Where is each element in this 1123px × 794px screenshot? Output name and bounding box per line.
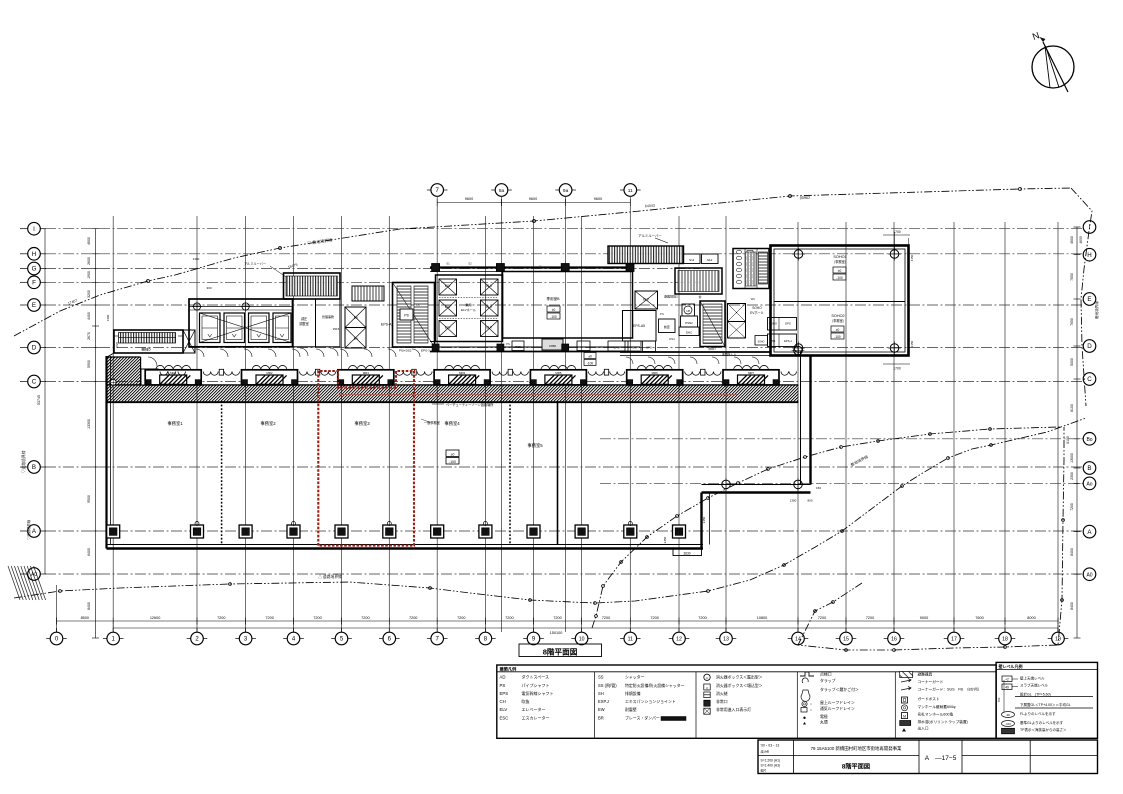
svg-text:出入口: 出入口 [918,726,929,731]
svg-text:I: I [33,226,35,233]
svg-text:EVホール: EVホール [750,310,765,315]
svg-text:MR7: MR7 [748,371,754,375]
svg-text:49: 49 [1005,686,1009,690]
svg-text:4600: 4600 [1070,236,1074,244]
svg-text:2600: 2600 [87,257,91,265]
svg-text:13: 13 [723,637,729,643]
svg-text:Ao: Ao [1086,482,1092,488]
svg-text:PS: PS [404,314,409,318]
svg-text:EPS: EPS [785,322,791,326]
svg-text:Bo: Bo [1086,437,1092,443]
svg-text:事務室5: 事務室5 [527,442,543,449]
svg-text:5900: 5900 [87,360,91,368]
svg-text:前室: 前室 [664,324,670,329]
svg-text:-100: -100 [834,335,841,339]
svg-text:アルミルーバー: アルミルーバー [244,261,266,266]
svg-text:D: D [32,345,37,352]
svg-text:PSI+DS2: PSI+DS2 [399,349,412,353]
svg-text:150100: 150100 [550,631,563,635]
svg-text:B: B [32,464,36,471]
svg-text:ELVホール: ELVホール [461,307,476,312]
svg-text:DHC: DHC [686,331,692,335]
svg-text:EV: EV [354,337,359,341]
svg-text:S12: S12 [707,258,713,262]
svg-text:壁レベル凡例: 壁レベル凡例 [998,663,1023,669]
svg-text:EPS: EPS [614,346,620,350]
svg-text:7650: 7650 [1070,318,1074,326]
svg-text:EPS-3: EPS-3 [421,349,430,353]
svg-text:減圧: 減圧 [301,316,308,321]
svg-text:エスカレーター: エスカレーター [522,714,550,720]
svg-text:▽道路境界線: ▽道路境界線 [21,450,26,473]
svg-text:3200: 3200 [87,290,91,298]
svg-text:18: 18 [1002,637,1008,643]
svg-text:19: 19 [1055,637,1061,643]
svg-text:1300: 1300 [106,314,110,321]
svg-text:ELV: ELV [486,305,493,309]
svg-text:AD: AD [500,675,506,680]
svg-text:9a: 9a [563,188,569,194]
svg-text:7200: 7200 [265,616,273,620]
svg-text:1900: 1900 [87,271,91,279]
svg-text:非常用進入口表示灯: 非常用進入口表示灯 [716,707,751,712]
svg-text:タラップ＜題かご付＞: タラップ＜題かご付＞ [820,687,859,692]
svg-text:±0: ±0 [588,355,592,359]
svg-text:SOHO: SOHO [758,342,765,344]
svg-text:コーナーガード: コーナーガード [918,679,944,684]
svg-text:'00・03・13: '00・03・13 [761,744,780,748]
svg-text:7200: 7200 [505,616,513,620]
svg-text:PS: PS [500,683,506,688]
svg-text:建築凡例: 建築凡例 [499,665,517,672]
svg-text:7200: 7200 [361,616,369,620]
svg-text:CH: CH [500,699,506,704]
svg-text:前: 前 [699,295,702,299]
svg-text:消火栳: 消火栳 [716,691,728,696]
svg-text:避難器具: 避難器具 [918,671,933,676]
svg-text:パイプシャフト: パイプシャフト [522,682,550,688]
svg-text:53745: 53745 [37,395,41,405]
svg-text:マンホール蔵勑蓄600φ: マンホール蔵勑蓄600φ [918,704,957,709]
svg-text:2515: 2515 [333,327,340,331]
svg-text:6400: 6400 [87,548,91,556]
svg-text:EW: EW [598,707,605,712]
svg-text:7200: 7200 [866,616,874,620]
svg-text:8100: 8100 [1070,404,1074,412]
svg-text:MR5: MR5 [555,371,561,375]
svg-text:15: 15 [843,637,849,643]
svg-text:ELV: ELV [500,707,508,712]
svg-text:PSN2: PSN2 [685,321,693,325]
svg-text:2670: 2670 [87,332,91,340]
svg-text:DS4: DS4 [669,337,675,341]
svg-text:2450: 2450 [663,536,667,543]
svg-text:16: 16 [891,637,897,643]
svg-text:79 15A5100 新橋田村町地区市街地再開発事業: 79 15A5100 新橋田村町地区市街地再開発事業 [811,745,902,752]
svg-text:基準GLよりのレベルを示す: 基準GLよりのレベルを示す [1020,720,1064,725]
svg-text:WC: WC [751,297,756,301]
svg-text:-100: -100 [836,276,843,280]
svg-text:G: G [32,266,37,273]
svg-text:7650: 7650 [1070,273,1074,281]
svg-text:（事務室）: （事務室） [830,318,846,323]
svg-text:11: 11 [628,637,633,643]
svg-text:（事務室）: （事務室） [832,259,848,264]
svg-text:SH: SH [598,691,604,696]
svg-text:8500: 8500 [81,616,89,620]
svg-text:ELV: ELV [643,298,650,302]
svg-text:2300: 2300 [1070,472,1074,480]
svg-text:7200: 7200 [602,616,610,620]
svg-text:消火器ボックス＜堳込型＞: 消火器ボックス＜堳込型＞ [716,683,763,688]
svg-text:EPS-A1: EPS-A1 [381,323,394,327]
svg-text:9500: 9500 [87,495,91,503]
svg-text:消: 消 [539,265,542,269]
svg-text:シャッター: シャッター [625,675,645,680]
svg-text:7200: 7200 [409,616,417,620]
svg-text:屋上ルーフドレイン: 屋上ルーフドレイン [820,700,855,705]
svg-text:9600: 9600 [594,197,602,201]
svg-text:SOHO: SOHO [752,306,762,310]
svg-text:13000: 13000 [1070,453,1074,463]
svg-text:-100: -100 [1005,722,1011,726]
svg-text:S11: S11 [689,258,694,262]
svg-text:SS: SS [598,675,604,680]
svg-text:4600: 4600 [87,237,91,245]
svg-text:S=1:200 (A1): S=1:200 (A1) [761,759,781,763]
svg-text:-100: -100 [449,460,456,464]
svg-text:300: 300 [206,286,211,290]
svg-text:MR3: MR3 [363,371,369,375]
svg-text:排水溶(ポリリントラップ装置): 排水溶(ポリリントラップ装置) [918,719,968,724]
svg-text:ベーチューティーゾーン設置場所: ベーチューティーゾーン設置場所 [446,402,494,407]
svg-text:7200: 7200 [1070,503,1074,511]
svg-text:機械5: 機械5 [141,347,150,352]
svg-text:I: I [1089,224,1091,231]
svg-text:MR4: MR4 [459,371,465,375]
svg-text:150: 150 [816,486,821,490]
svg-text:H: H [1087,252,1091,259]
svg-text:事務室1: 事務室1 [167,420,183,427]
svg-text:3630: 3630 [683,552,690,556]
svg-text:縮尺: 縮尺 [761,769,767,773]
svg-text:ガードポスト: ガードポスト [918,696,940,701]
svg-text:避難階段2: 避難階段2 [664,294,678,299]
svg-text:下層霊GL＜TP+4.00＞＝平均GL: 下層霊GL＜TP+4.00＞＝平均GL [1020,702,1071,707]
svg-text:特定防火設備/防火設備シャッター: 特定防火設備/防火設備シャッター [625,683,685,688]
svg-text:電極: 電極 [820,714,828,719]
svg-text:EPS-A5: EPS-A5 [633,324,645,328]
svg-text:ELV: ELV [486,284,493,288]
svg-text:事務室3: 事務室3 [354,420,370,427]
svg-text:消火器ボックス＜露出型＞: 消火器ボックス＜露出型＞ [716,675,763,680]
svg-text:S1: S1 [446,262,450,266]
svg-text:EV: EV [354,316,359,320]
svg-text:排煩設備: 排煩設備 [625,691,641,696]
svg-text:2626: 2626 [115,341,119,348]
svg-text:800: 800 [807,499,812,503]
svg-text:7600: 7600 [975,616,983,620]
svg-text:-100: -100 [550,315,557,319]
svg-text:アルミルーバー: アルミルーバー [638,233,662,238]
svg-text:7200: 7200 [650,616,658,620]
svg-text:火: 火 [706,686,709,690]
svg-text:1700: 1700 [893,367,901,371]
svg-text:乗用: 乗用 [465,302,471,307]
svg-text:吹抜: 吹抜 [522,698,530,704]
svg-text:C850: C850 [549,344,557,348]
svg-text:1300: 1300 [790,499,797,503]
svg-text:△ 道路境界線: △ 道路境界線 [318,574,342,579]
svg-text:A0: A0 [31,572,37,578]
svg-text:F: F [32,280,36,287]
svg-text:点検口: 点検口 [820,671,832,676]
svg-text:H: H [32,251,36,258]
svg-text:EPS: EPS [646,346,652,350]
svg-text:7200: 7200 [457,616,465,620]
svg-text:エレベーター: エレベーター [522,706,546,712]
svg-text:7200: 7200 [818,616,826,620]
svg-text:±0: ±0 [552,308,556,312]
svg-text:コーナーガード：SUS FB （8か所）: コーナーガード：SUS FB （8か所） [918,686,982,691]
svg-text:管理事務: 管理事務 [322,314,334,319]
svg-text:E: E [1087,296,1091,303]
svg-text:設計者: 設計者 [761,750,770,754]
svg-text:一般事務室: 一般事務室 [424,420,440,425]
svg-text:PS3: PS3 [515,345,521,349]
svg-text:名札マンホール600角: 名札マンホール600角 [918,712,954,717]
svg-text:49: 49 [1006,713,1010,717]
svg-text:PS: PS [506,342,510,346]
svg-text:調整室: 調整室 [299,321,309,326]
svg-text:17: 17 [951,637,957,643]
svg-text:8階平面図: 8階平面図 [842,763,870,771]
svg-text:4600: 4600 [1079,236,1083,244]
svg-text:エキスパンションジョイント: エキスパンションジョイント [625,699,676,704]
svg-text:A0: A0 [1086,572,1092,578]
svg-text:EPS-1: EPS-1 [784,339,792,343]
svg-text:8100: 8100 [1066,436,1070,444]
svg-text:7200: 7200 [553,616,561,620]
svg-text:FLよりのレベルを示す: FLよりのレベルを示す [1020,711,1056,716]
svg-text:8400: 8400 [1070,548,1074,556]
svg-text:7200: 7200 [698,616,706,620]
svg-text:11: 11 [628,188,633,194]
svg-text:U8: U8 [686,309,690,313]
svg-text:階段3: 階段3 [708,346,716,351]
svg-text:ブレース・ダンパー: ブレース・ダンパー [625,715,660,720]
svg-text:-100: -100 [587,362,594,366]
svg-text:EXP.J: EXP.J [598,699,609,704]
svg-text:9600: 9600 [529,197,537,201]
svg-text:火: 火 [706,676,709,680]
svg-text:8a: 8a [499,188,505,194]
svg-text:事務室2: 事務室2 [260,420,276,427]
svg-text:12: 12 [676,637,682,643]
svg-text:9000: 9000 [920,616,928,620]
svg-text:SS (飛/管): SS (飛/管) [598,682,617,688]
svg-text:MR6: MR6 [652,371,658,375]
svg-text:700: 700 [997,697,1001,702]
svg-text:C: C [32,379,37,386]
svg-text:M: M [903,714,906,718]
svg-text:10: 10 [579,637,585,643]
svg-text:専用室B: 専用室B [546,296,560,301]
svg-text:C: C [1087,376,1092,383]
svg-text:SOHO1: SOHO1 [833,255,846,259]
svg-text:TP表示＜海抜高からの高さ＞: TP表示＜海抜高からの高さ＞ [1020,727,1067,732]
svg-text:80962: 80962 [800,196,811,201]
svg-text:8400: 8400 [1070,602,1074,610]
svg-text:FS: FS [416,303,420,307]
svg-text:ESC: ESC [500,715,509,720]
svg-text:非常口: 非常口 [716,699,728,704]
svg-text:ELV: ELV [445,326,452,330]
svg-text:2150: 2150 [910,340,914,347]
svg-text:D: D [1087,343,1092,350]
svg-text:ELV: ELV [486,326,493,330]
svg-text:8000: 8000 [1027,616,1035,620]
svg-text:±0: ±0 [838,269,842,273]
svg-text:ダクトスペース: ダクトスペース [522,674,550,680]
svg-text:13300: 13300 [87,419,91,429]
svg-text:7200: 7200 [313,616,321,620]
svg-text:タラップ: タラップ [820,678,836,683]
svg-text:B: B [1087,465,1091,472]
svg-text:4150: 4150 [910,254,914,261]
svg-text:○: ○ [609,265,611,269]
svg-text:1300: 1300 [193,257,200,261]
svg-text:E: E [32,302,36,309]
svg-text:8階平面図: 8階平面図 [543,647,578,657]
svg-text:2450: 2450 [702,516,706,523]
svg-text:9600: 9600 [465,197,473,201]
svg-text:±0: ±0 [451,453,455,457]
svg-text:電気幹線シャフト: 電気幹線シャフト [522,690,554,696]
svg-text:DS: DS [633,346,637,350]
svg-text:MR2: MR2 [266,371,272,375]
svg-text:BR: BR [598,715,604,720]
svg-text:14: 14 [795,637,801,643]
svg-text:事務室4: 事務室4 [444,420,460,427]
svg-text:EPS: EPS [500,691,509,696]
svg-text:耐震壁: 耐震壁 [625,707,637,712]
svg-text:10800: 10800 [757,616,768,620]
svg-text:S2: S2 [468,262,472,266]
svg-text:丸環: 丸環 [820,719,828,724]
svg-text:ELV: ELV [445,284,452,288]
svg-text:スラブ天端レベル: スラブ天端レベル [1020,683,1048,688]
svg-text:通気ルーフドレイン: 通気ルーフドレイン [820,706,855,711]
svg-text:+2: +2 [1005,678,1009,682]
svg-text:4400: 4400 [87,312,91,320]
svg-text:5000: 5000 [1070,358,1074,366]
svg-text:12600: 12600 [150,616,161,620]
svg-text:設計GL (TP+5.60): 設計GL (TP+5.60) [1020,692,1051,697]
svg-text:S=1:400 (A3): S=1:400 (A3) [761,764,781,768]
svg-text:PS: PS [660,312,664,316]
svg-text:7200: 7200 [217,616,225,620]
svg-text:SOHO2: SOHO2 [831,314,844,318]
svg-text:ELV: ELV [445,305,452,309]
svg-text:8400: 8400 [87,602,91,610]
svg-text:壁上天端レベル: 壁上天端レベル [1020,675,1045,680]
svg-text:▽道路境界線: ▽道路境界線 [26,519,31,540]
svg-text:A —17−5: A —17−5 [925,755,957,762]
svg-text:±0: ±0 [836,328,840,332]
